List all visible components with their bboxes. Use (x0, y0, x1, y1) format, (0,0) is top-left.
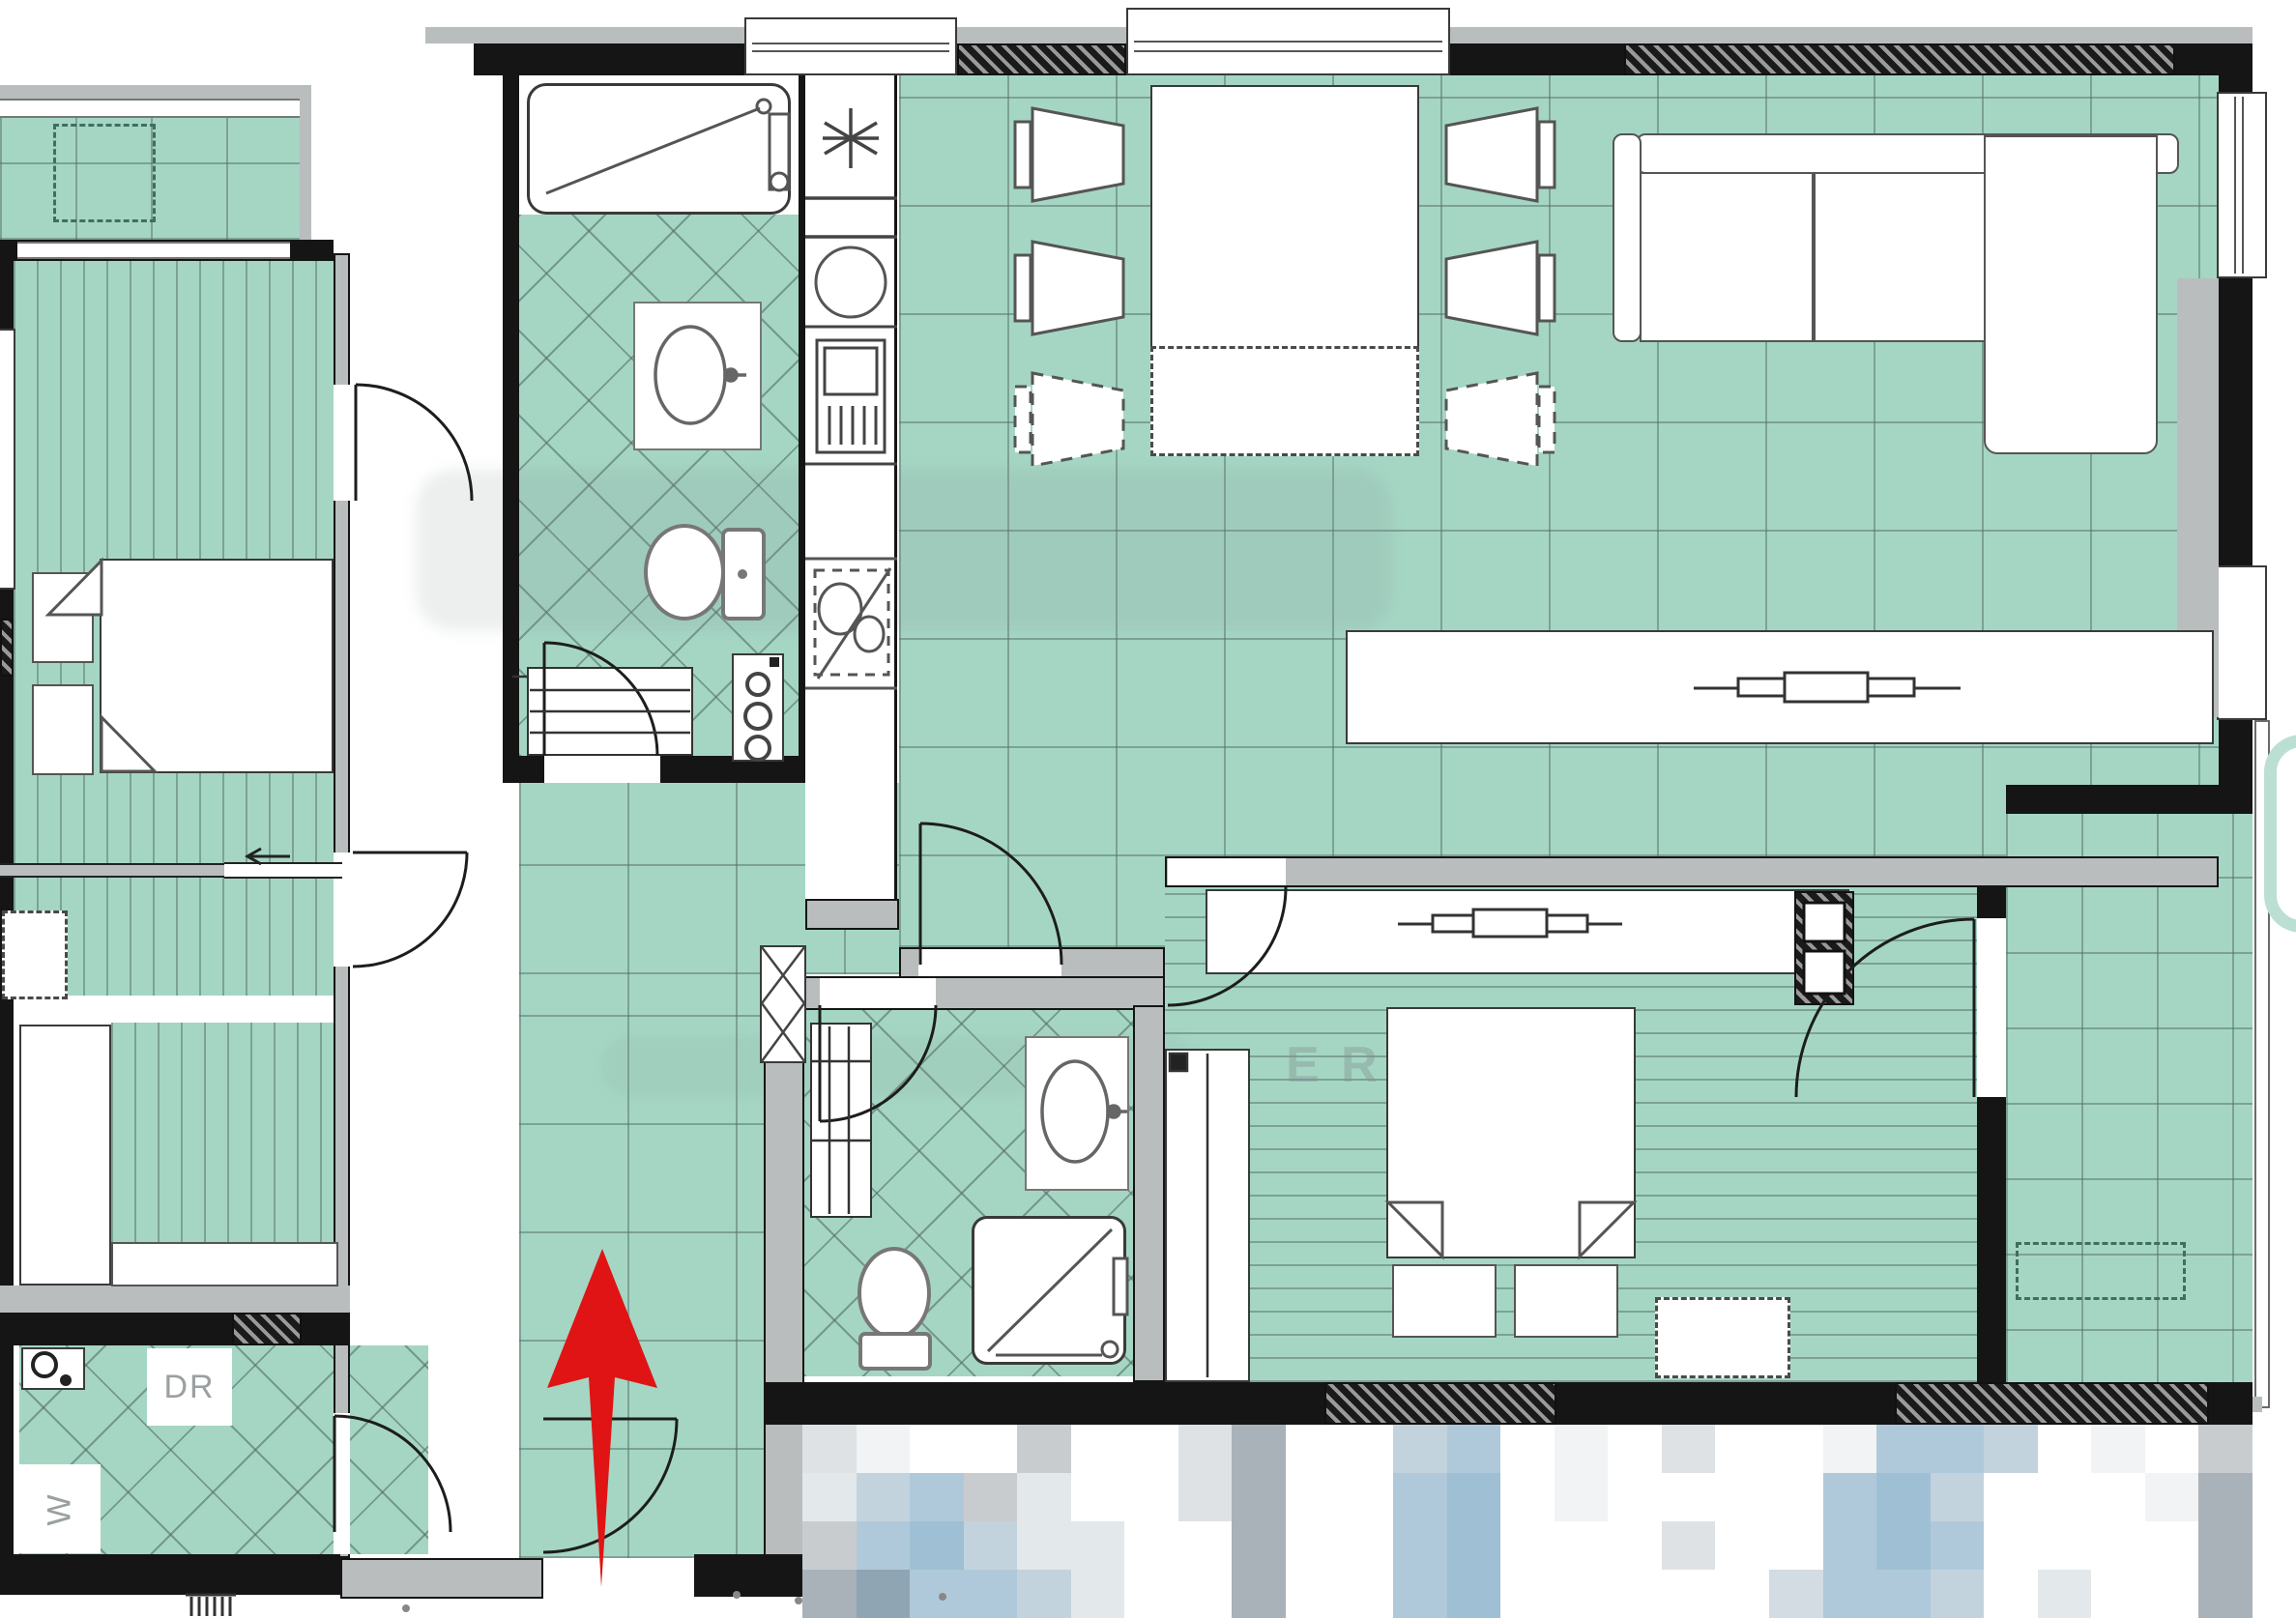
mosaic-cell (1662, 1521, 1716, 1570)
mosaic-cell (1017, 1425, 1071, 1473)
mosaic-cell (1340, 1570, 1394, 1618)
mosaic-cell (1071, 1425, 1125, 1473)
mosaic-cell (1876, 1521, 1931, 1570)
utility-sink-unit (21, 1347, 85, 1390)
wardrobe-master (1165, 1049, 1250, 1382)
mosaic-cell (1178, 1425, 1233, 1473)
mosaic-cell (1769, 1570, 1823, 1618)
meter-panel (732, 653, 784, 762)
mosaic-cell (1017, 1570, 1071, 1618)
door-gap-bathroom-main (544, 756, 660, 783)
mosaic-cell (1017, 1521, 1071, 1570)
mosaic-cell (1931, 1570, 1985, 1618)
kitchen-counter (805, 75, 897, 899)
wall-utility-hatch (232, 1313, 302, 1345)
mosaic-cell (1876, 1473, 1931, 1521)
wall-bathroom2-bedroom (1133, 1005, 1165, 1382)
door-gap-balcony (1977, 918, 2006, 1097)
mosaic-cell (1555, 1425, 1609, 1473)
mosaic-cell (1393, 1570, 1447, 1618)
mosaic-cell (1286, 1473, 1340, 1521)
mosaic-cell (1124, 1473, 1178, 1521)
mosaic-cell (2038, 1425, 2092, 1473)
mosaic-cell (2038, 1473, 2092, 1521)
balcony-tl-glazing (0, 99, 300, 118)
dining-table-extension (1150, 346, 1419, 456)
mosaic-cell (1823, 1570, 1877, 1618)
mosaic-cell (1340, 1425, 1394, 1473)
sofa-seat-1 (1640, 172, 1814, 342)
mosaic-cell (1500, 1425, 1555, 1473)
mosaic-cell (964, 1425, 1018, 1473)
mosaic-cell (857, 1521, 911, 1570)
mosaic-cell (1823, 1425, 1877, 1473)
mosaic-cell (1555, 1570, 1609, 1618)
washer-box: W (19, 1464, 101, 1553)
mosaic-cell (1931, 1473, 1985, 1521)
mosaic-cell (1769, 1521, 1823, 1570)
mosaic-cell (1232, 1425, 1286, 1473)
wall-bathroom-main-left (503, 43, 519, 783)
wall-bedroom-dressing (0, 863, 227, 878)
mosaic-cell (802, 1521, 857, 1570)
mosaic-cell (964, 1521, 1018, 1570)
wall-bottom-hatch-1 (1324, 1382, 1556, 1425)
mosaic-cell (2145, 1521, 2199, 1570)
mosaic-cell (1931, 1521, 1985, 1570)
window-kitchen-frame (752, 43, 949, 52)
window-right-frame (2234, 97, 2244, 274)
mosaic-cell (1823, 1521, 1877, 1570)
washbasin-main-counter (633, 302, 762, 450)
censored-mosaic (802, 1425, 2252, 1618)
mosaic-cell (910, 1473, 964, 1521)
wall-closet-utility-gray (0, 1286, 350, 1313)
wall-bottom-gray (340, 1558, 543, 1599)
mosaic-cell (1447, 1425, 1501, 1473)
mosaic-cell (1447, 1570, 1501, 1618)
wall-top-hatch-1 (957, 43, 1126, 75)
mosaic-cell (1931, 1425, 1985, 1473)
mosaic-cell (1178, 1521, 1233, 1570)
floor-plan: E R (0, 0, 2296, 1618)
mosaic-cell (1823, 1473, 1877, 1521)
wall-corner-right (2219, 720, 2252, 785)
landscape-accent-shape (2264, 735, 2296, 933)
dining-table (1150, 85, 1419, 350)
mosaic-cell (1071, 1473, 1125, 1521)
mosaic-cell (1340, 1473, 1394, 1521)
sofa-chaise (1984, 135, 2158, 454)
mosaic-cell (1876, 1425, 1931, 1473)
mosaic-cell (1393, 1521, 1447, 1570)
bathtub (527, 83, 791, 215)
sliding-door-track (224, 862, 342, 879)
mosaic-cell (857, 1473, 911, 1521)
nightstand-left-1 (32, 572, 94, 663)
mosaic-cell (2091, 1425, 2145, 1473)
sofa-seat-2 (1814, 172, 1986, 342)
mosaic-cell (1555, 1521, 1609, 1570)
mosaic-cell (1769, 1473, 1823, 1521)
dryer-box: DR (147, 1348, 232, 1426)
living-dining-floor-ext (899, 856, 1165, 947)
watermark-fragment: E R (1286, 1036, 1395, 1094)
mosaic-cell (1876, 1570, 1931, 1618)
wall-bottom-right-of-door (694, 1554, 802, 1597)
mosaic-cell (1393, 1473, 1447, 1521)
mosaic-cell (1662, 1570, 1716, 1618)
mosaic-cell (1124, 1425, 1178, 1473)
mosaic-cell (802, 1570, 857, 1618)
window-dining-frame (1134, 41, 1442, 52)
mosaic-cell (1715, 1570, 1769, 1618)
dresser-bedroom (1206, 889, 1849, 974)
door-gap-bathroom2 (820, 978, 936, 1008)
pillow-master-1 (1392, 1264, 1497, 1338)
stair-comb-marks (186, 1595, 236, 1616)
mosaic-cell (1124, 1521, 1178, 1570)
shaft-column (760, 945, 806, 1063)
wall-kitchen-bottom (805, 899, 899, 930)
mosaic-cell (2145, 1570, 2199, 1618)
mosaic-cell (857, 1425, 911, 1473)
balcony-tl-parapet (0, 85, 302, 99)
window-bedroom-left-top (17, 242, 290, 259)
wall-hallway-bathroom2 (764, 1005, 804, 1558)
mosaic-cell (964, 1570, 1018, 1618)
wall-bottom-left (0, 1554, 340, 1595)
balcony-right-dashed-unit (2016, 1242, 2186, 1300)
mosaic-cell (1608, 1473, 1662, 1521)
mosaic-cell (2091, 1521, 2145, 1570)
shower (972, 1216, 1126, 1365)
bed-left (100, 559, 334, 773)
nightstand-master-dashed (1655, 1297, 1790, 1378)
mosaic-cell (1608, 1521, 1662, 1570)
bed-master (1386, 1007, 1636, 1258)
chimney-shaft (1794, 891, 1854, 1005)
mosaic-cell (1500, 1473, 1555, 1521)
washer-label: W (42, 1492, 79, 1525)
wall-balcony-right-top (2006, 785, 2252, 814)
mosaic-cell (2091, 1570, 2145, 1618)
mosaic-cell (1715, 1473, 1769, 1521)
balcony-tl-sidewall (300, 85, 311, 240)
mosaic-cell (802, 1425, 857, 1473)
mosaic-cell (1393, 1425, 1447, 1473)
balcony-tl-dashed-unit (53, 124, 156, 222)
mosaic-cell (1232, 1473, 1286, 1521)
balcony-right-floor (2006, 814, 2252, 1406)
mosaic-cell (1500, 1521, 1555, 1570)
door-gap-utility (334, 1413, 350, 1554)
mosaic-cell (2145, 1473, 2199, 1521)
mosaic-cell (1984, 1570, 2038, 1618)
mosaic-cell (1340, 1521, 1394, 1570)
mosaic-cell (1500, 1570, 1555, 1618)
mosaic-cell (1178, 1473, 1233, 1521)
wall-top-2 (1450, 43, 1624, 75)
mosaic-cell (1071, 1570, 1125, 1618)
mosaic-cell (1178, 1570, 1233, 1618)
sofa-arm-left (1613, 133, 1642, 342)
mosaic-cell (1984, 1425, 2038, 1473)
closet-dresser-bottom (111, 1242, 338, 1286)
door-gap-living (918, 949, 1061, 979)
mosaic-cell (1984, 1521, 2038, 1570)
door-arc-closet (353, 852, 467, 967)
mosaic-cell (1608, 1570, 1662, 1618)
mosaic-cell (1769, 1425, 1823, 1473)
mosaic-cell (2145, 1425, 2199, 1473)
watermark-letter-e: E (1286, 1037, 1337, 1093)
window-right-lower (2217, 565, 2267, 720)
mosaic-cell (910, 1425, 964, 1473)
wall-left-hatch (0, 619, 14, 677)
mosaic-cell (857, 1570, 911, 1618)
mosaic-cell (1286, 1521, 1340, 1570)
mosaic-cell (1124, 1570, 1178, 1618)
dryer-label: DR (163, 1369, 215, 1406)
mosaic-cell (1715, 1521, 1769, 1570)
wall-top-hatch-2 (1624, 43, 2175, 75)
mosaic-cell (1071, 1521, 1125, 1570)
door-gap-bedroom-master (1168, 858, 1286, 885)
mosaic-cell (2038, 1570, 2092, 1618)
dressing-dashed-unit (2, 910, 68, 999)
door-gap-bedroom-left (334, 385, 350, 501)
mosaic-cell (1447, 1521, 1501, 1570)
mosaic-cell (2198, 1570, 2252, 1618)
towel-radiator-main (527, 667, 693, 756)
mosaic-cell (1662, 1473, 1716, 1521)
mosaic-cell (1715, 1425, 1769, 1473)
sideboard-living (1346, 630, 2214, 744)
mosaic-cell (1984, 1473, 2038, 1521)
watermark (416, 469, 1392, 631)
mosaic-cell (1608, 1425, 1662, 1473)
mosaic-cell (2198, 1473, 2252, 1521)
mosaic-cell (910, 1521, 964, 1570)
mosaic-cell (1017, 1473, 1071, 1521)
closet-floor (111, 1023, 338, 1243)
mosaic-cell (1286, 1425, 1340, 1473)
mosaic-cell (1555, 1473, 1609, 1521)
mosaic-cell (1286, 1570, 1340, 1618)
mosaic-cell (2198, 1521, 2252, 1570)
mosaic-cell (2091, 1473, 2145, 1521)
mosaic-cell (1662, 1425, 1716, 1473)
closet-wardrobe-left (19, 1025, 111, 1286)
mosaic-cell (1232, 1570, 1286, 1618)
mosaic-cell (2038, 1521, 2092, 1570)
wall-bottom-hatch-2 (1895, 1382, 2209, 1425)
mosaic-cell (2198, 1425, 2252, 1473)
mosaic-cell (1447, 1473, 1501, 1521)
wall-bathroom-kitchen (799, 75, 805, 756)
washbasin-2-counter (1025, 1036, 1129, 1191)
mosaic-cell (910, 1570, 964, 1618)
window-left-bedroom (0, 329, 15, 590)
wall-living-bedroom (1165, 856, 2219, 887)
wall-top-3 (2175, 43, 2252, 75)
nightstand-left-2 (32, 684, 94, 775)
mosaic-cell (802, 1473, 857, 1521)
towel-radiator-2 (810, 1023, 872, 1218)
mosaic-cell (1232, 1521, 1286, 1570)
mosaic-cell (964, 1473, 1018, 1521)
pillow-master-2 (1514, 1264, 1618, 1338)
